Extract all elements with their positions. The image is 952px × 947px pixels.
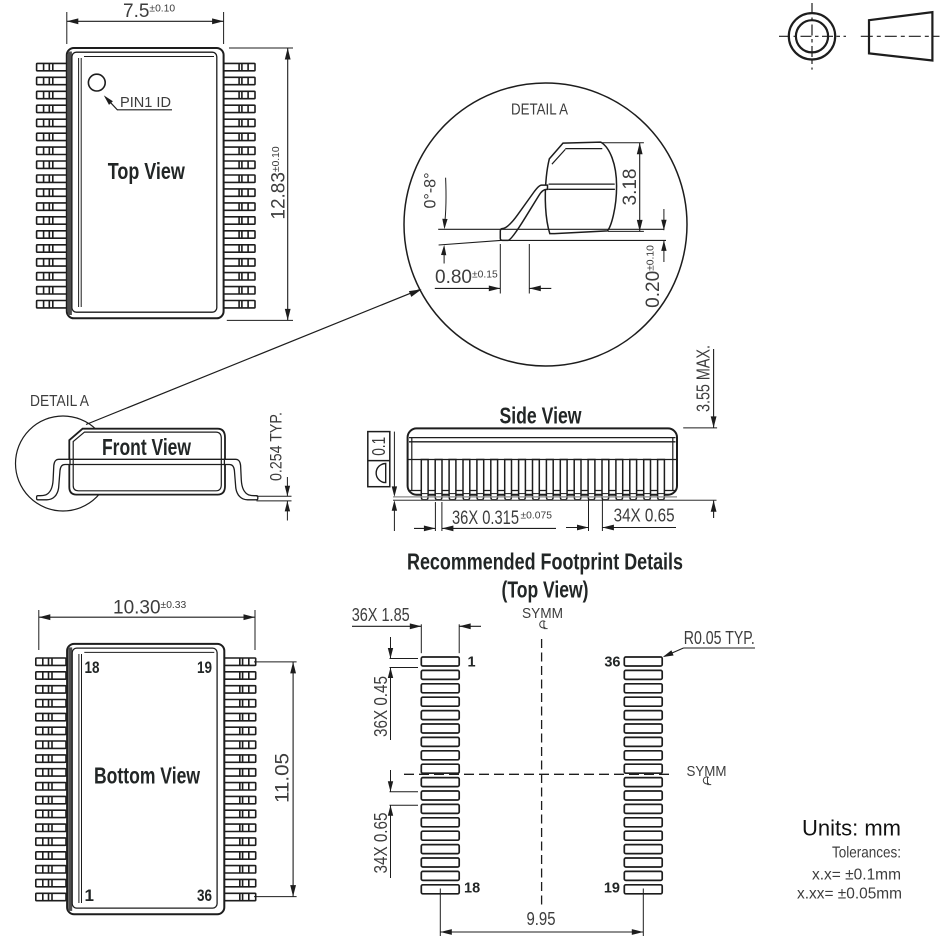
svg-text:36: 36 xyxy=(604,654,620,670)
svg-text:34X 0.65: 34X 0.65 xyxy=(370,813,391,874)
svg-text:DETAIL A: DETAIL A xyxy=(511,102,569,119)
svg-text:PIN1 ID: PIN1 ID xyxy=(120,95,171,111)
svg-text:R0.05 TYP.: R0.05 TYP. xyxy=(684,627,755,648)
svg-text:34X 0.65: 34X 0.65 xyxy=(614,505,675,526)
svg-text:36X 0.45: 36X 0.45 xyxy=(370,676,391,737)
svg-text:1: 1 xyxy=(85,886,94,905)
svg-text:1: 1 xyxy=(468,654,476,670)
svg-text:Front View: Front View xyxy=(102,434,191,460)
svg-text:18: 18 xyxy=(85,658,100,677)
svg-text:DETAIL A: DETAIL A xyxy=(30,393,90,410)
svg-text:36X 1.85: 36X 1.85 xyxy=(352,604,410,625)
svg-text:0.1: 0.1 xyxy=(368,437,389,456)
svg-text:SYMM: SYMM xyxy=(522,605,563,622)
svg-text:11.05: 11.05 xyxy=(272,753,293,803)
svg-text:19: 19 xyxy=(197,658,212,677)
svg-text:Bottom View: Bottom View xyxy=(94,763,200,789)
svg-text:Tolerances:: Tolerances: xyxy=(832,845,901,862)
svg-text:(Top View): (Top View) xyxy=(502,576,589,602)
svg-text:19: 19 xyxy=(604,880,620,896)
svg-text:0.254 TYP.: 0.254 TYP. xyxy=(268,412,286,481)
svg-text:18: 18 xyxy=(464,880,480,896)
svg-text:0°-8°: 0°-8° xyxy=(421,173,440,209)
svg-text:3.55 MAX.: 3.55 MAX. xyxy=(693,345,714,412)
svg-text:Top View: Top View xyxy=(108,158,185,184)
svg-text:Units: mm: Units: mm xyxy=(802,816,901,841)
svg-text:x.x= ±0.1mm: x.x= ±0.1mm xyxy=(812,866,901,883)
svg-text:36X 0.315: 36X 0.315 xyxy=(452,508,519,529)
svg-text:±0.075: ±0.075 xyxy=(521,511,553,522)
svg-text:36: 36 xyxy=(197,886,212,905)
svg-text:Side View: Side View xyxy=(500,402,582,428)
svg-text:9.95: 9.95 xyxy=(527,908,556,929)
svg-text:SYMM: SYMM xyxy=(687,763,727,780)
svg-text:Recommended Footprint Details: Recommended Footprint Details xyxy=(407,548,683,574)
svg-text:x.xx= ±0.05mm: x.xx= ±0.05mm xyxy=(797,886,902,903)
svg-text:3.18: 3.18 xyxy=(620,169,641,206)
